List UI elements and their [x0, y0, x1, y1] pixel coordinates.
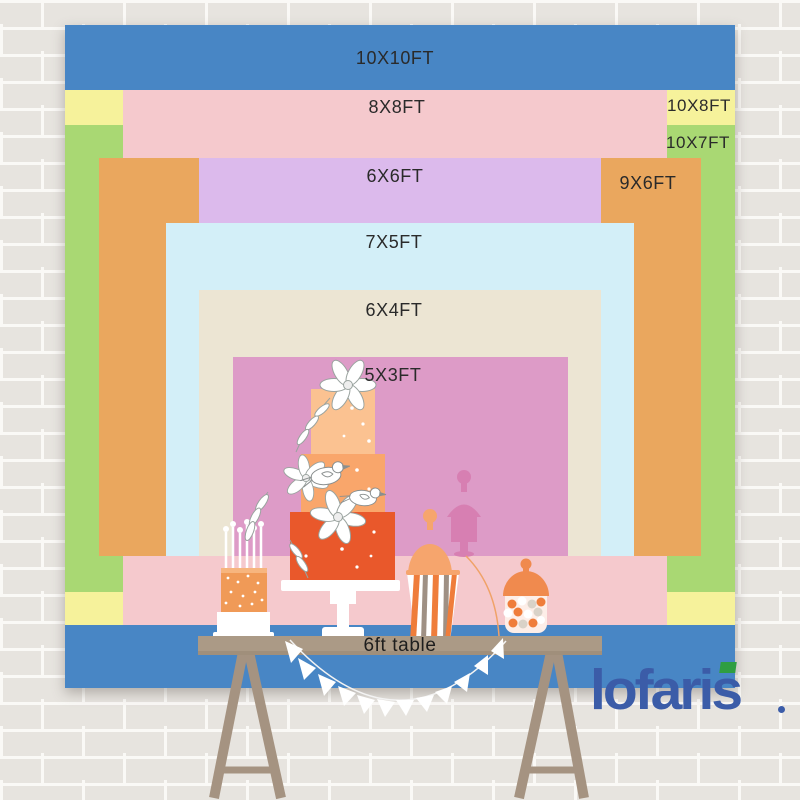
size-label-10x8ft: 10X8FT: [667, 96, 731, 116]
size-label-10x7ft: 10X7FT: [666, 133, 730, 153]
size-label-6x6ft: 6X6FT: [366, 166, 423, 187]
size-label-10x10ft: 10X10FT: [356, 48, 434, 69]
lofaris-logo: lofaris: [590, 662, 800, 724]
table-size-label: 6ft table: [363, 635, 436, 657]
size-label-9x6ft: 9X6FT: [619, 173, 676, 194]
size-label-8x8ft: 8X8FT: [368, 97, 425, 118]
size-label-5x3ft: 5X3FT: [364, 365, 421, 386]
logo-registered-dot-icon: [778, 706, 785, 713]
brick-wall-background: 10X10FT 8X8FT 10X8FT 10X7FT 6X6FT 9X6FT …: [0, 0, 800, 800]
logo-green-square-icon: [719, 662, 737, 673]
size-label-7x5ft: 7X5FT: [365, 232, 422, 253]
backdrop-5x3: [233, 357, 568, 556]
lofaris-logo-text: lofaris: [590, 658, 740, 722]
size-label-6x4ft: 6X4FT: [365, 300, 422, 321]
